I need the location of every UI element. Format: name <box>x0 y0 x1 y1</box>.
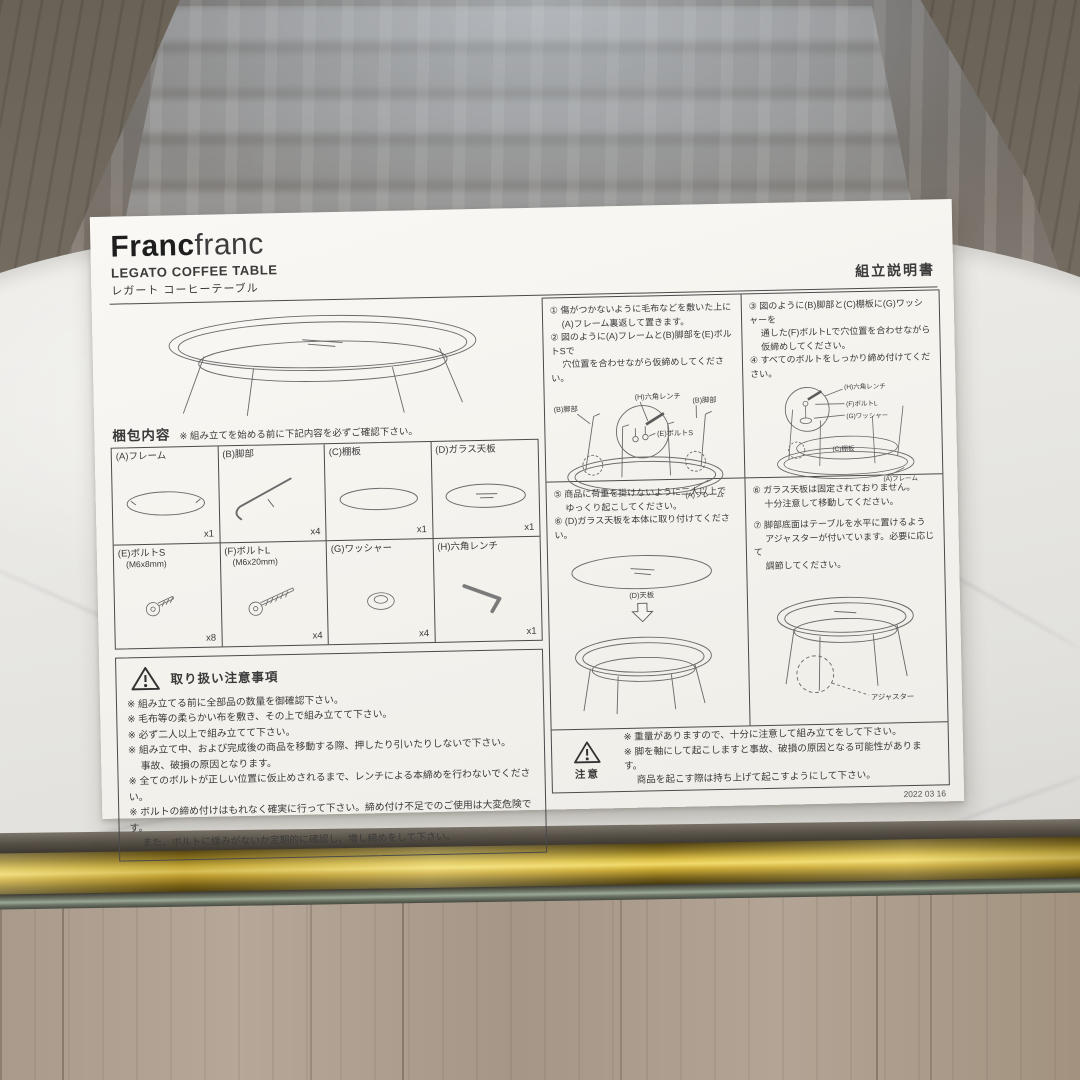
step-line: 穴位置を合わせながら仮締めしてください。 <box>551 355 736 386</box>
bolt-s-part-icon <box>119 574 216 626</box>
step-line: アジャスターが付いています。必要に応じて <box>754 529 938 560</box>
caution-label: 注意 <box>575 767 600 783</box>
leg-part-icon <box>223 467 320 527</box>
part-qty: x1 <box>526 626 536 637</box>
left-column: 梱包内容 ※ 組み立てを始める前に下記内容を必ずご確認下さい。 (A)フレーム … <box>108 298 548 862</box>
part-qty: x1 <box>204 529 214 540</box>
floor-plank-seam <box>62 880 64 1080</box>
diagram-label: (D)天板 <box>629 591 655 601</box>
brand-logo: Francfranc <box>110 229 277 262</box>
step-6-7-cell: ⑥ ガラス天板は固定されておりません。 十分注意して移動してください。 ⑦ 脚部… <box>744 474 947 725</box>
document-title: 組立説明書 <box>855 259 935 283</box>
part-qty: x4 <box>312 630 322 641</box>
product-name-jp: レガート コーヒーテーブル <box>111 279 278 298</box>
step-3-4-cell: ③ 図のように(B)脚部と(C)棚板に(G)ワッシャーを 通した(F)ボルトLで… <box>741 290 943 477</box>
sheet-header: Francfranc LEGATO COFFEE TABLE レガート コーヒー… <box>106 215 939 298</box>
diagram-label: (C)棚板 <box>832 444 855 453</box>
part-cell-hex-wrench: (H)六角レンチ x1 <box>433 537 542 642</box>
assembled-table-drawing <box>112 300 534 423</box>
step-line: ③ 図のように(B)脚部と(C)棚板に(G)ワッシャーを <box>749 296 933 327</box>
part-qty: x4 <box>419 628 429 639</box>
part-cell-leg: (B)脚部 x4 <box>218 444 327 543</box>
part-label: (B)脚部 <box>222 447 320 460</box>
floor-plank-seam <box>402 880 404 1080</box>
warning-triangle-icon <box>130 665 161 693</box>
step-7-diagram: アジャスター <box>754 569 937 715</box>
step-3-4-diagram: (H)六角レンチ (F)ボルトL (G)ワッシャー (C)棚板 (A)フレーム <box>750 377 936 485</box>
handling-warning-box: 取り扱い注意事項 ※ 組み立てる前に全部品の数量を御確認下さい。 ※ 毛布等の柔… <box>115 649 547 862</box>
step-line: ② 図のように(A)フレームと(B)脚部を(E)ボルトSで <box>550 328 735 359</box>
part-cell-bolt-l: (F)ボルトL (M6x20mm) x4 <box>220 541 329 646</box>
part-qty: x8 <box>206 633 216 644</box>
part-cell-frame: (A)フレーム x1 <box>112 446 221 545</box>
brand-block: Francfranc LEGATO COFFEE TABLE レガート コーヒー… <box>110 229 278 298</box>
warning-triangle-icon <box>573 740 602 766</box>
shelf-part-icon <box>330 465 427 525</box>
assembly-steps-box: ① 傷がつかないように毛布などを敷いた上に (A)フレーム裏返して置きます。 ②… <box>542 289 950 793</box>
diagram-label: (F)ボルトL <box>846 399 878 408</box>
sheet-columns: 梱包内容 ※ 組み立てを始める前に下記内容を必ずご確認下さい。 (A)フレーム … <box>108 289 951 861</box>
packing-note: ※ 組み立てを始める前に下記内容を必ずご確認下さい。 <box>179 423 418 442</box>
part-sub-label: (M6x20mm) <box>232 556 322 568</box>
step-line: ④ すべてのボルトをしっかり締め付けてください。 <box>750 350 934 381</box>
part-label: (D)ガラス天板 <box>435 443 534 456</box>
caution-lines: ※ 重量がありますので、十分に注意して組み立てをして下さい。 ※ 脚を軸にして起… <box>623 725 938 789</box>
washer-part-icon <box>332 570 429 622</box>
diagram-label: (B)脚部 <box>554 404 578 414</box>
caution-icon-block: 注意 <box>562 739 613 782</box>
handling-title-row: 取り扱い注意事項 <box>126 657 532 692</box>
part-qty: x1 <box>417 524 427 535</box>
step-5-6-diagram: (D)天板 <box>555 539 739 729</box>
steps-row-1: ① 傷がつかないように毛布などを敷いた上に (A)フレーム裏返して置きます。 ②… <box>543 290 943 482</box>
diagram-label: アジャスター <box>871 692 914 702</box>
packing-heading: 梱包内容 <box>112 423 170 444</box>
caution-strip: 注意 ※ 重量がありますので、十分に注意して組み立てをして下さい。 ※ 脚を軸に… <box>552 722 949 792</box>
step-5-6-cell: ⑤ 商品に荷重を掛けないように二人以上で ゆっくり起こしてください。 ⑥ (D)… <box>546 478 749 729</box>
brand-light: franc <box>194 227 264 261</box>
product-name-en: LEGATO COFFEE TABLE <box>111 262 278 280</box>
part-label: (H)六角レンチ <box>437 540 536 553</box>
part-label: (A)フレーム <box>116 450 214 463</box>
part-label: (C)棚板 <box>329 445 427 458</box>
part-cell-washer: (G)ワッシャー x4 <box>327 539 436 644</box>
frame-part-icon <box>117 469 214 529</box>
part-cell-shelf: (C)棚板 x1 <box>325 442 434 541</box>
step-line: ⑥ (D)ガラス天板を本体に取り付けてください。 <box>554 512 739 543</box>
diagram-label: (H)六角レンチ <box>635 391 681 401</box>
hex-wrench-part-icon <box>439 567 536 619</box>
photo-scene: Francfranc LEGATO COFFEE TABLE レガート コーヒー… <box>0 0 1080 1080</box>
floor-plank-seam <box>876 880 878 1080</box>
part-cell-bolt-s: (E)ボルトS (M6x8mm) x8 <box>114 543 223 648</box>
part-label: (G)ワッシャー <box>331 542 429 555</box>
part-cell-glass-top: (D)ガラス天板 x1 <box>431 440 540 539</box>
brand-bold: Franc <box>110 229 195 264</box>
instruction-sheet: Francfranc LEGATO COFFEE TABLE レガート コーヒー… <box>90 199 964 819</box>
steps-row-2: ⑤ 商品に荷重を掛けないように二人以上で ゆっくり起こしてください。 ⑥ (D)… <box>546 474 947 730</box>
part-qty: x1 <box>524 522 534 533</box>
diagram-label: (H)六角レンチ <box>844 381 886 391</box>
step-1-2-cell: ① 傷がつかないように毛布などを敷いた上に (A)フレーム裏返して置きます。 ②… <box>543 294 745 481</box>
parts-table: (A)フレーム x1 (B)脚部 x4 <box>111 439 543 650</box>
right-column: ① 傷がつかないように毛布などを敷いた上に (A)フレーム裏返して置きます。 ②… <box>542 289 952 852</box>
glass-top-part-icon <box>437 463 534 523</box>
part-sub-label: (M6x8mm) <box>126 558 216 570</box>
part-qty: x4 <box>310 526 320 537</box>
bolt-l-part-icon <box>226 572 323 624</box>
diagram-label: (E)ボルトS <box>657 428 693 438</box>
diagram-label: (G)ワッシャー <box>846 411 888 420</box>
handling-title: 取り扱い注意事項 <box>170 666 278 687</box>
diagram-label: (B)脚部 <box>692 395 716 405</box>
